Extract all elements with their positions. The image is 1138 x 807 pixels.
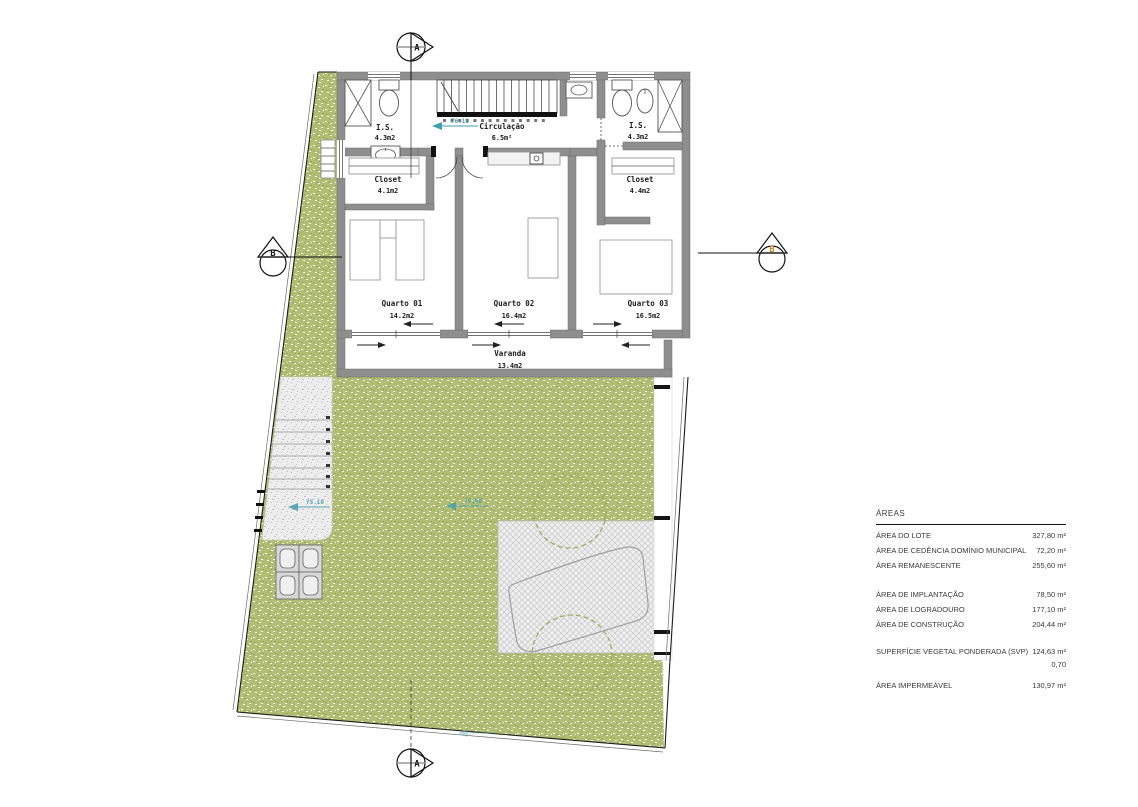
- row-label: ÁREA DE LOGRADOURO: [876, 602, 965, 617]
- bath-left-name: I.S.: [376, 123, 394, 132]
- level-marker-floor: 76.19: [432, 118, 478, 130]
- table-row: ÁREA DE CEDÊNCIA DOMÍNIO MUNICIPAL 72,20…: [876, 543, 1066, 558]
- areas-table: ÁREAS ÁREA DO LOTE 327,80 m² ÁREA DE CED…: [876, 509, 1066, 693]
- bedroom1-area: 14.2m2: [390, 312, 415, 320]
- areas-table-rule: [876, 524, 1066, 525]
- section-marker-a-bottom: A: [397, 749, 433, 777]
- table-row: ÁREA IMPERMEÁVEL 130,97 m²: [876, 678, 1066, 693]
- bedroom1-name: Quarto 01: [382, 299, 423, 308]
- row-value: 72,20 m²: [1036, 543, 1066, 558]
- areas-table-title: ÁREAS: [876, 509, 1066, 518]
- bedroom2-area: 16.4m2: [502, 312, 527, 320]
- bath-left-area: 4.3m2: [375, 134, 395, 142]
- section-marker-b-left: B: [258, 237, 288, 276]
- bedroom2-furniture: [488, 152, 560, 278]
- sliding-door-bedroom1: [352, 321, 440, 348]
- table-row: ÁREA DE IMPLANTAÇÃO 78,50 m²: [876, 587, 1066, 602]
- section-letter: B: [769, 245, 775, 255]
- circulation-area: 6.5m²: [492, 134, 512, 142]
- skylight-grid: [276, 545, 322, 599]
- level-value: 75.10: [306, 499, 324, 506]
- balcony-name: Varanda: [494, 349, 526, 358]
- bath-right-area: 4.3m2: [628, 133, 648, 141]
- row-label: ÁREA REMANESCENTE: [876, 558, 961, 573]
- row-label: ÁREA DE CEDÊNCIA DOMÍNIO MUNICIPAL: [876, 543, 1026, 558]
- table-row: 0,70: [876, 659, 1066, 670]
- bathroom-right-fixtures: [566, 80, 682, 132]
- sliding-door-bedroom2: [468, 321, 550, 348]
- window-left-wall: [321, 140, 345, 178]
- level-value: 75.60: [464, 498, 482, 505]
- section-letter: B: [270, 249, 276, 259]
- table-row: ÁREA REMANESCENTE 255,60 m²: [876, 558, 1066, 573]
- bedroom3-bed: [600, 240, 672, 294]
- side-wall-strip: [654, 377, 672, 660]
- row-value: 124,63 m²: [1032, 644, 1066, 659]
- bedroom2-name: Quarto 02: [494, 299, 535, 308]
- row-label: ÁREA DE IMPLANTAÇÃO: [876, 587, 964, 602]
- row-value: 130,97 m²: [1032, 678, 1066, 693]
- bedroom3-name: Quarto 03: [628, 299, 669, 308]
- row-value: 327,80 m²: [1032, 528, 1066, 543]
- row-value: 177,10 m²: [1032, 602, 1066, 617]
- balcony-area: 13.4m2: [498, 362, 523, 370]
- table-row: ÁREA DO LOTE 327,80 m²: [876, 528, 1066, 543]
- toilet-icon: [379, 80, 399, 90]
- table-row: ÁREA DE CONSTRUÇÃO 204,44 m²: [876, 617, 1066, 632]
- closet-left-name: Closet: [374, 175, 401, 184]
- bedroom3-area: 16.5m2: [636, 312, 661, 320]
- section-marker-b-right: B: [757, 233, 787, 272]
- drawing-sheet: 76.19 75.10 75.60 A A B B: [0, 0, 1138, 807]
- closet-left-area: 4.1m2: [378, 187, 398, 195]
- row-label: ÁREA DO LOTE: [876, 528, 931, 543]
- sliding-door-bedroom3: [583, 321, 652, 348]
- row-value: 255,60 m²: [1032, 558, 1066, 573]
- sink-icon: [566, 82, 592, 98]
- row-label: ÁREA DE CONSTRUÇÃO: [876, 617, 964, 632]
- closet-right-name: Closet: [626, 175, 653, 184]
- bedroom1-bed: [350, 220, 424, 280]
- table-row: ÁREA DE LOGRADOURO 177,10 m²: [876, 602, 1066, 617]
- toilet-icon: [612, 80, 632, 90]
- row-label: ÁREA IMPERMEÁVEL: [876, 678, 952, 693]
- table-row: SUPERFÍCIE VEGETAL PONDERADA (SVP) 124,6…: [876, 644, 1066, 659]
- row-value: 0,70: [1051, 659, 1066, 670]
- circulation-name: Circulação: [479, 122, 525, 131]
- row-label: SUPERFÍCIE VEGETAL PONDERADA (SVP): [876, 644, 1028, 659]
- row-value: 204,44 m²: [1032, 617, 1066, 632]
- row-value: 78,50 m²: [1036, 587, 1066, 602]
- staircase: [437, 80, 557, 122]
- closet-right-area: 4.4m2: [630, 187, 650, 195]
- bath-right-name: I.S.: [629, 121, 647, 130]
- level-value: 76.19: [451, 118, 469, 125]
- section-letter: A: [414, 760, 420, 770]
- section-letter: A: [414, 44, 420, 54]
